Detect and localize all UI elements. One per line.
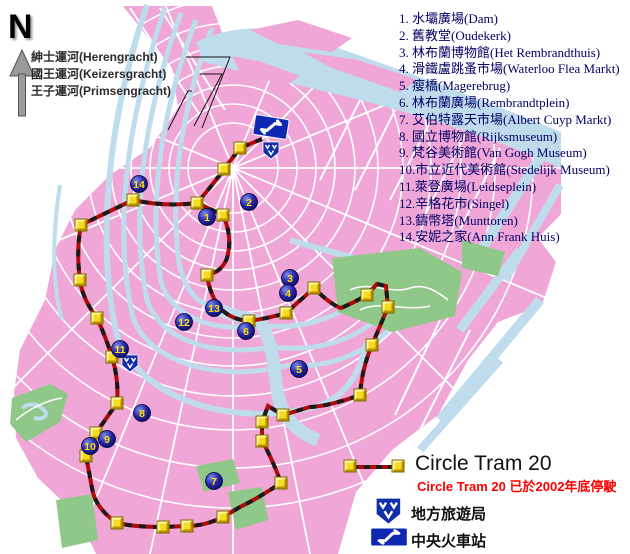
- attraction-marker-number: 11: [114, 344, 125, 356]
- attraction-list-item: 1. 水壩廣場(Dam): [399, 11, 620, 28]
- tram-stop-marker: [75, 219, 87, 231]
- tram-stop-marker: [127, 194, 139, 206]
- legend-ns-icon: [371, 528, 408, 546]
- north-compass-label: N: [8, 10, 33, 44]
- attraction-marker: 8: [134, 405, 151, 422]
- attraction-list-item: 10.市立近代美術館(Stedelijk Museum): [399, 162, 620, 179]
- tram-stop-marker: [361, 289, 373, 301]
- attraction-marker: 10: [82, 438, 99, 455]
- canal-label-prinsengracht: 王子運河(Primsengracht): [31, 85, 171, 98]
- tram-stop-marker: [217, 511, 229, 523]
- attraction-marker-number: 12: [178, 317, 190, 329]
- tram-stop-marker: [91, 312, 103, 324]
- attraction-marker: 6: [238, 323, 255, 340]
- attraction-list-item: 12.辛格花市(Singel): [399, 196, 620, 213]
- attraction-marker: 3: [282, 270, 299, 287]
- tram-stop-marker: [74, 274, 86, 286]
- tram-stop-marker: [256, 416, 268, 428]
- attraction-marker-number: 8: [139, 408, 145, 420]
- tram-stop-marker: [157, 521, 169, 533]
- attraction-marker-number: 4: [285, 288, 291, 300]
- attraction-marker: 12: [176, 314, 193, 331]
- attraction-marker: 2: [241, 194, 258, 211]
- attraction-list-item: 13.鑄幣塔(Munttoren): [399, 213, 620, 230]
- tram-stop-marker: [191, 197, 203, 209]
- attraction-marker: 13: [206, 300, 223, 317]
- tram-stop-marker: [111, 397, 123, 409]
- tram-stop-marker: [218, 163, 230, 175]
- tram-stop-marker: [308, 282, 320, 294]
- amsterdam-tram-map: 1234567891011121314 N 紳士運河(Herengracht) …: [0, 0, 630, 554]
- legend-tram-stop-icon: [392, 460, 404, 472]
- tram-stop-marker: [382, 301, 394, 313]
- attraction-marker: 4: [280, 285, 297, 302]
- tram-stop-marker: [201, 269, 213, 281]
- attraction-list-item: 4. 滑鐵盧跳蚤市場(Waterloo Flea Markt): [399, 61, 620, 78]
- attraction-marker: 11: [112, 341, 129, 358]
- legend-vvv-icon: [376, 498, 401, 524]
- attraction-marker-number: 9: [104, 434, 110, 446]
- tram-stop-marker: [256, 435, 268, 447]
- attraction-list-item: 11.萊登廣場(Leidseplein): [399, 179, 620, 196]
- canal-label-herengracht: 紳士運河(Herengracht): [31, 51, 158, 64]
- tram-stop-marker: [277, 409, 289, 421]
- attraction-list-item: 5. 瘦橋(Magerebrug): [399, 78, 620, 95]
- attraction-marker-number: 5: [296, 364, 302, 376]
- tram-stop-marker: [275, 477, 287, 489]
- attraction-list-item: 8. 國立博物館(Rijksmuseum): [399, 129, 620, 146]
- tram-stop-marker: [354, 389, 366, 401]
- legend-tram-stop-icon: [344, 460, 356, 472]
- attraction-marker: 9: [99, 431, 116, 448]
- attraction-marker-number: 13: [208, 303, 220, 315]
- attraction-list-item: 6. 林布蘭廣場(Rembrandtplein): [399, 95, 620, 112]
- attraction-marker: 7: [206, 473, 223, 490]
- attraction-list-item: 2. 舊教堂(Oudekerk): [399, 28, 620, 45]
- attraction-marker-number: 6: [243, 326, 249, 338]
- legend-vvv-label: 地方旅遊局: [411, 503, 486, 524]
- tram-stop-marker: [366, 339, 378, 351]
- attraction-marker: 5: [291, 361, 308, 378]
- attraction-marker-number: 10: [84, 441, 96, 453]
- attraction-marker-number: 2: [246, 197, 252, 209]
- attraction-marker-number: 3: [287, 273, 293, 285]
- tram-stop-marker: [234, 142, 246, 154]
- legend-tram-discontinued-note: Circle Tram 20 已於2002年底停駛: [417, 476, 616, 495]
- attraction-list-item: 7. 艾伯特露天市場(Albert Cuyp Markt): [399, 112, 620, 129]
- tram-stop-marker: [111, 517, 123, 529]
- attraction-list-item: 3. 林布蘭博物館(Het Rembrandthuis): [399, 45, 620, 62]
- attraction-marker-number: 1: [204, 212, 210, 224]
- legend-tram-label: Circle Tram 20: [415, 452, 552, 476]
- canal-label-keizersgracht: 國王運河(Keizersgracht): [31, 68, 166, 81]
- tram-stop-marker: [181, 520, 193, 532]
- attraction-list-item: 9. 梵谷美術館(Van Gogh Museum): [399, 145, 620, 162]
- legend-ns-label: 中央火車站: [411, 530, 486, 551]
- tram-stop-marker: [217, 209, 229, 221]
- attractions-list: 1. 水壩廣場(Dam) 2. 舊教堂(Oudekerk) 3. 林布蘭博物館(…: [399, 11, 620, 246]
- tram-stop-marker: [280, 307, 292, 319]
- attraction-marker: 14: [131, 176, 148, 193]
- attraction-list-item: 14.安妮之家(Ann Frank Huis): [399, 229, 620, 246]
- attraction-marker: 1: [199, 209, 216, 226]
- attraction-marker-number: 7: [211, 476, 217, 488]
- attraction-marker-number: 14: [133, 179, 145, 191]
